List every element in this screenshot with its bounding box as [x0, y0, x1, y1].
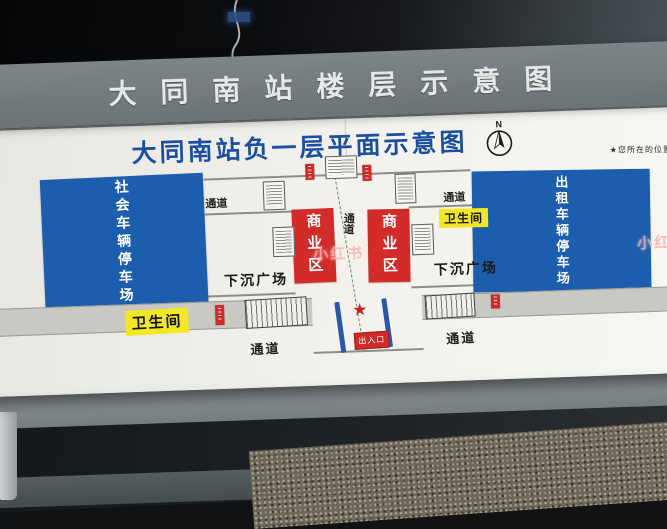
- passage-label-top-right: 通道: [443, 188, 466, 205]
- escalator-box-left: [244, 296, 308, 329]
- exit-marker-label: 出入口: [354, 331, 390, 350]
- board-title: 大同南站楼层示意图: [108, 57, 577, 113]
- floor-plan-panel: 大同南站负一层平面示意图 N ★您所在的位置 社会车辆停车场 出租车辆停车场 商…: [0, 107, 667, 397]
- passage-label-bottom-right: 通道: [446, 327, 477, 348]
- entrance-tag-bottom-right: [491, 294, 500, 308]
- watermark-center: 小红书: [313, 242, 365, 265]
- taxi-parking-area: 出租车辆停车场: [472, 169, 652, 293]
- passage-guide-bar-left: [334, 302, 346, 353]
- passage-label-bottom-left: 通道: [250, 338, 281, 359]
- commercial-area-right: 商业区: [367, 209, 410, 283]
- sunken-plaza-label-left: 下沉广场: [224, 269, 289, 291]
- escalator-box-right: [424, 293, 475, 320]
- you-are-here-star-icon: ★: [352, 301, 368, 319]
- entrance-tag-top-right: [362, 165, 372, 181]
- station-sign-board: 大同南站楼层示意图 大同南站负一层平面示意图 N ★您所在的位置 社会车辆停车场…: [0, 41, 667, 397]
- distant-blue-sign: [228, 12, 250, 22]
- table-leg: [0, 412, 17, 500]
- sunken-plaza-label-right: 下沉广场: [433, 257, 498, 279]
- compass-north-letter: N: [495, 119, 502, 129]
- stairs-icon-plaza-right: [411, 224, 434, 256]
- watermark-right-edge: 小红书: [637, 231, 667, 254]
- compass-icon: N: [481, 117, 518, 160]
- stairs-icon-corridor-left: [263, 181, 286, 211]
- map-title: 大同南站负一层平面示意图: [131, 122, 468, 170]
- social-vehicle-parking-area: 社会车辆停车场: [40, 173, 209, 311]
- stairs-icon-corridor-right: [394, 173, 416, 204]
- entrance-tag-mid-left: [215, 305, 225, 325]
- corridor-line-left: [205, 210, 293, 215]
- stairs-icon-plaza-left: [272, 226, 295, 257]
- entrance-tag-top-left: [305, 164, 315, 180]
- toilet-label-right: 卫生间: [439, 208, 488, 228]
- corridor-line-right: [409, 204, 473, 208]
- plaza-line-left: [208, 292, 296, 297]
- stairs-icon-top-center: [325, 155, 358, 179]
- toilet-label-left: 卫生间: [125, 308, 189, 336]
- you-are-here-note: ★您所在的位置: [610, 144, 667, 156]
- passage-label-top-left: 通道: [205, 195, 228, 212]
